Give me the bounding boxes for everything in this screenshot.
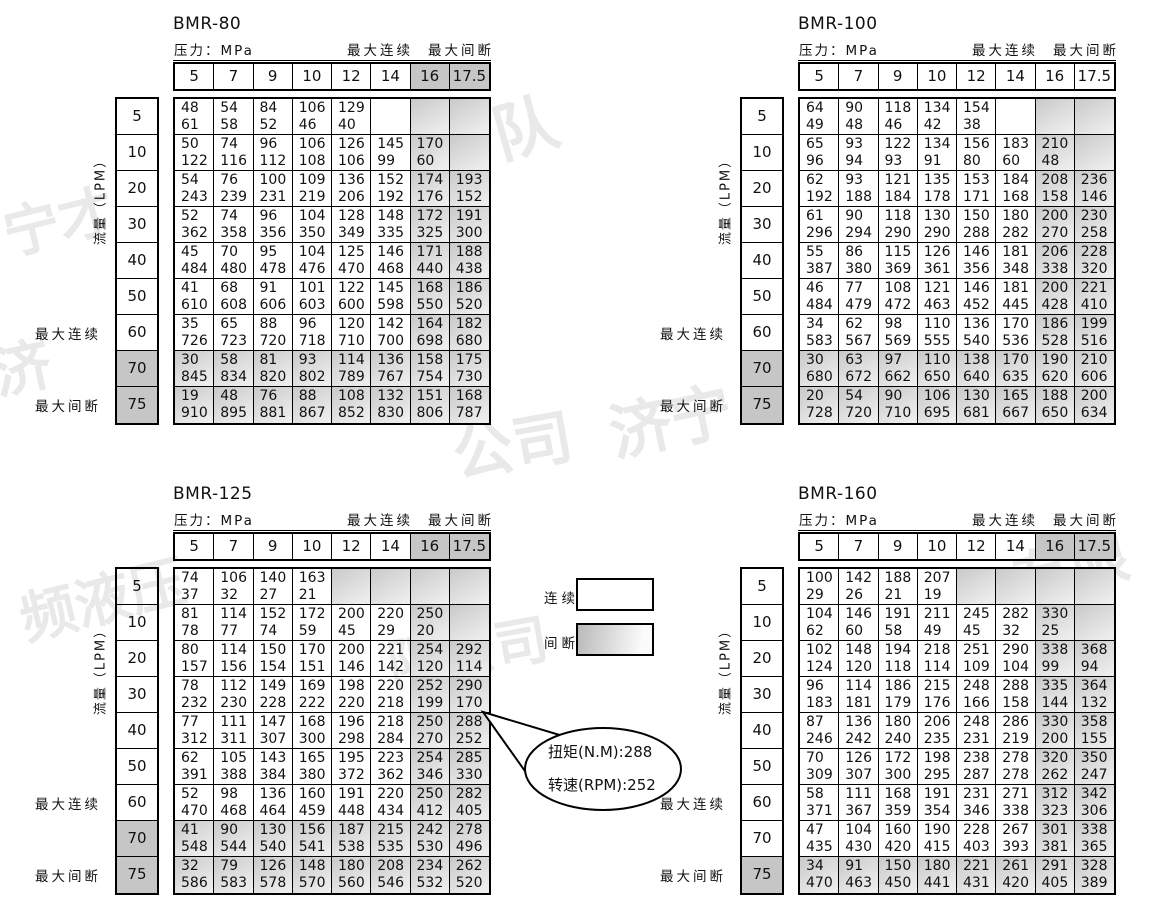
data-cell: 191354 bbox=[918, 785, 957, 821]
speed-value: 42 bbox=[924, 117, 956, 134]
torque-value: 191 bbox=[885, 606, 917, 623]
speed-value: 94 bbox=[1081, 659, 1114, 676]
speed-value: 288 bbox=[963, 225, 995, 242]
speed-value: 435 bbox=[806, 839, 838, 856]
torque-value: 328 bbox=[1081, 858, 1114, 875]
table-title: BMR-160 bbox=[798, 484, 878, 504]
torque-value: 115 bbox=[885, 244, 917, 261]
torque-value: 55 bbox=[806, 244, 838, 261]
speed-value: 910 bbox=[181, 405, 213, 422]
data-cell: 81820 bbox=[254, 351, 293, 387]
flow-label-cell: 20 bbox=[117, 171, 157, 207]
torque-value: 221 bbox=[963, 858, 995, 875]
speed-value: 700 bbox=[377, 333, 409, 350]
speed-value: 695 bbox=[924, 405, 956, 422]
speed-value: 464 bbox=[260, 803, 292, 820]
torque-value: 211 bbox=[924, 606, 956, 623]
torque-value: 180 bbox=[1002, 208, 1034, 225]
torque-value: 52 bbox=[181, 786, 213, 803]
torque-value: 278 bbox=[1002, 750, 1034, 767]
flow-labels-column: 51020304050607075 bbox=[740, 567, 784, 895]
data-cell: 20045 bbox=[332, 605, 371, 641]
data-cell: 96112 bbox=[254, 135, 293, 171]
speed-value: 445 bbox=[1002, 297, 1034, 314]
speed-value: 358 bbox=[220, 225, 252, 242]
speed-value: 535 bbox=[377, 839, 409, 856]
data-cell: 358155 bbox=[1075, 713, 1114, 749]
data-cell: 220434 bbox=[371, 785, 410, 821]
speed-value: 231 bbox=[260, 189, 292, 206]
pressure-header-row: 压力：MPa最大连续最大间断 bbox=[173, 509, 491, 531]
speed-value: 114 bbox=[924, 659, 956, 676]
data-cell: 93188 bbox=[839, 171, 878, 207]
speed-value: 480 bbox=[220, 261, 252, 278]
speed-value: 541 bbox=[299, 839, 331, 856]
torque-value: 180 bbox=[338, 858, 370, 875]
data-cell: 21048 bbox=[1036, 135, 1075, 171]
data-cell: 190415 bbox=[918, 821, 957, 857]
flow-label-cell: 70 bbox=[742, 351, 782, 387]
data-cell: 33025 bbox=[1036, 605, 1075, 641]
speed-value: 120 bbox=[417, 659, 449, 676]
data-cell: 186520 bbox=[450, 279, 489, 315]
data-cell: 168787 bbox=[450, 387, 489, 423]
speed-value: 228 bbox=[260, 695, 292, 712]
speed-value: 300 bbox=[885, 767, 917, 784]
speed-value: 61 bbox=[181, 117, 213, 134]
max-continuous-header-label: 最大连续 bbox=[347, 509, 413, 529]
data-cell: 165667 bbox=[996, 387, 1035, 423]
data-cell: 9394 bbox=[839, 135, 878, 171]
data-cell: 330200 bbox=[1036, 713, 1075, 749]
data-cell: 52470 bbox=[175, 785, 214, 821]
table-bmr-80: BMR-80压力：MPa最大连续最大间断5791012141617.551020… bbox=[35, 14, 493, 444]
data-cell: 54720 bbox=[839, 387, 878, 423]
torque-value: 290 bbox=[456, 678, 489, 695]
speed-value: 200 bbox=[1042, 731, 1074, 748]
torque-value: 350 bbox=[1081, 750, 1114, 767]
speed-value: 356 bbox=[260, 225, 292, 242]
speed-value: 27 bbox=[260, 587, 292, 604]
speed-value: 270 bbox=[1042, 225, 1074, 242]
speed-value: 634 bbox=[1081, 405, 1114, 422]
speed-value: 176 bbox=[417, 189, 449, 206]
torque-value: 50 bbox=[181, 136, 213, 153]
torque-value: 95 bbox=[260, 244, 292, 261]
torque-value: 267 bbox=[1002, 822, 1034, 839]
pressure-header-cell: 9 bbox=[254, 64, 293, 89]
speed-value: 349 bbox=[338, 225, 370, 242]
speed-value: 258 bbox=[1081, 225, 1114, 242]
torque-value: 194 bbox=[885, 642, 917, 659]
torque-value: 135 bbox=[924, 172, 956, 189]
speed-value: 496 bbox=[456, 839, 489, 856]
torque-value: 184 bbox=[1002, 172, 1034, 189]
flow-label-cell: 40 bbox=[117, 713, 157, 749]
torque-value: 128 bbox=[338, 208, 370, 225]
torque-value: 121 bbox=[924, 280, 956, 297]
data-cell: 12940 bbox=[332, 99, 371, 135]
speed-value: 420 bbox=[1002, 875, 1034, 892]
torque-value: 34 bbox=[806, 858, 838, 875]
flow-label-cell: 40 bbox=[117, 243, 157, 279]
data-cell: 248166 bbox=[957, 677, 996, 713]
data-cell: 33899 bbox=[1036, 641, 1075, 677]
data-cell bbox=[332, 569, 371, 605]
speed-value: 536 bbox=[1002, 333, 1034, 350]
flow-label-cell: 5 bbox=[742, 99, 782, 135]
data-cell: 200146 bbox=[332, 641, 371, 677]
torque-value: 149 bbox=[260, 678, 292, 695]
speed-value: 106 bbox=[338, 153, 370, 170]
pressure-header-row: 压力：MPa最大连续最大间断 bbox=[798, 509, 1116, 531]
data-cell: 194118 bbox=[879, 641, 918, 677]
pressure-header-cell: 5 bbox=[175, 64, 214, 89]
torque-value: 19 bbox=[181, 388, 213, 405]
torque-value: 188 bbox=[885, 570, 917, 587]
speed-value: 96 bbox=[806, 153, 838, 170]
torque-value: 174 bbox=[417, 172, 449, 189]
data-cell: 169222 bbox=[293, 677, 332, 713]
speed-value: 555 bbox=[924, 333, 956, 350]
data-cell: 142700 bbox=[371, 315, 410, 351]
data-cell: 112230 bbox=[214, 677, 253, 713]
torque-value: 125 bbox=[338, 244, 370, 261]
speed-value: 728 bbox=[806, 405, 838, 422]
flow-labels-column: 51020304050607075 bbox=[740, 97, 784, 425]
torque-value: 198 bbox=[924, 750, 956, 767]
torque-value: 122 bbox=[885, 136, 917, 153]
torque-value: 47 bbox=[806, 822, 838, 839]
data-cell: 231346 bbox=[957, 785, 996, 821]
data-cell: 10462 bbox=[800, 605, 839, 641]
torque-value: 58 bbox=[220, 352, 252, 369]
speed-value: 338 bbox=[1042, 261, 1074, 278]
flow-label-cell: 10 bbox=[742, 135, 782, 171]
speed-value: 867 bbox=[299, 405, 331, 422]
torque-value: 320 bbox=[1042, 750, 1074, 767]
data-cell: 41548 bbox=[175, 821, 214, 857]
speed-value: 608 bbox=[220, 297, 252, 314]
torque-value: 126 bbox=[338, 136, 370, 153]
data-cell: 186528 bbox=[1036, 315, 1075, 351]
data-cell: 171440 bbox=[411, 243, 450, 279]
torque-value: 186 bbox=[456, 280, 489, 297]
data-cell bbox=[450, 605, 489, 641]
speed-value: 80 bbox=[963, 153, 995, 170]
data-cell: 108472 bbox=[879, 279, 918, 315]
torque-value: 145 bbox=[377, 280, 409, 297]
data-cell: 160420 bbox=[879, 821, 918, 857]
torque-value: 100 bbox=[260, 172, 292, 189]
data-cell: 292114 bbox=[450, 641, 489, 677]
torque-value: 109 bbox=[299, 172, 331, 189]
speed-value: 806 bbox=[417, 405, 449, 422]
speed-value: 60 bbox=[1002, 153, 1034, 170]
data-cell: 20728 bbox=[800, 387, 839, 423]
data-cell: 9048 bbox=[839, 99, 878, 135]
speed-value: 112 bbox=[260, 153, 292, 170]
torque-value: 91 bbox=[260, 280, 292, 297]
torque-value: 88 bbox=[299, 388, 331, 405]
speed-value: 726 bbox=[181, 333, 213, 350]
flow-axis-label: 流量（LPM） bbox=[715, 623, 734, 715]
torque-value: 190 bbox=[1042, 352, 1074, 369]
torque-value: 63 bbox=[845, 352, 877, 369]
speed-value: 412 bbox=[417, 803, 449, 820]
data-cell: 34583 bbox=[800, 315, 839, 351]
torque-value: 152 bbox=[377, 172, 409, 189]
torque-value: 32 bbox=[181, 858, 213, 875]
data-cell: 136767 bbox=[371, 351, 410, 387]
speed-value: 635 bbox=[1002, 369, 1034, 386]
speed-value: 586 bbox=[181, 875, 213, 892]
data-cell: 62391 bbox=[175, 749, 214, 785]
callout-torque: 扭矩(N.M):288 bbox=[548, 741, 656, 762]
speed-value: 116 bbox=[220, 153, 252, 170]
data-cell: 148335 bbox=[371, 207, 410, 243]
data-cell: 48895 bbox=[214, 387, 253, 423]
pressure-header-cell: 17.5 bbox=[450, 534, 489, 559]
speed-value: 60 bbox=[845, 623, 877, 640]
speed-value: 312 bbox=[181, 731, 213, 748]
speed-value: 120 bbox=[845, 659, 877, 676]
data-cell: 135178 bbox=[918, 171, 957, 207]
torque-value: 70 bbox=[806, 750, 838, 767]
data-cell: 97662 bbox=[879, 351, 918, 387]
flow-label-cell: 75 bbox=[742, 857, 782, 893]
flow-label-cell: 75 bbox=[117, 387, 157, 423]
torque-value: 146 bbox=[963, 280, 995, 297]
torque-value: 97 bbox=[885, 352, 917, 369]
flow-label-cell: 20 bbox=[742, 641, 782, 677]
speed-value: 290 bbox=[924, 225, 956, 242]
data-cell: 90544 bbox=[214, 821, 253, 857]
data-cell: 156541 bbox=[293, 821, 332, 857]
data-cell: 74116 bbox=[214, 135, 253, 171]
legend-intermittent-swatch bbox=[576, 623, 654, 656]
speed-value: 290 bbox=[885, 225, 917, 242]
data-cell: 76881 bbox=[254, 387, 293, 423]
torque-value: 77 bbox=[845, 280, 877, 297]
legend-continuous-swatch bbox=[576, 578, 654, 611]
torque-value: 136 bbox=[260, 786, 292, 803]
data-cell: 91463 bbox=[839, 857, 878, 893]
flow-label-cell: 10 bbox=[117, 135, 157, 171]
speed-value: 298 bbox=[338, 731, 370, 748]
torque-value: 80 bbox=[181, 642, 213, 659]
pressure-header-cell: 16 bbox=[411, 534, 450, 559]
speed-value: 282 bbox=[1002, 225, 1034, 242]
torque-value: 168 bbox=[456, 388, 489, 405]
data-cell bbox=[411, 99, 450, 135]
data-cell: 148120 bbox=[839, 641, 878, 677]
data-cell: 22029 bbox=[371, 605, 410, 641]
data-cell: 221431 bbox=[957, 857, 996, 893]
pressure-header-cell: 7 bbox=[214, 64, 253, 89]
torque-value: 106 bbox=[924, 388, 956, 405]
torque-value: 118 bbox=[885, 100, 917, 117]
torque-value: 121 bbox=[885, 172, 917, 189]
max-intermittent-side-label: 最大间断 bbox=[660, 395, 726, 415]
data-cell: 76239 bbox=[214, 171, 253, 207]
torque-value: 191 bbox=[338, 786, 370, 803]
speed-value: 567 bbox=[845, 333, 877, 350]
speed-value: 560 bbox=[338, 875, 370, 892]
torque-value: 170 bbox=[1002, 316, 1034, 333]
flow-label-cell: 5 bbox=[117, 569, 157, 605]
speed-value: 144 bbox=[1042, 695, 1074, 712]
pressure-header-cell: 12 bbox=[957, 64, 996, 89]
torque-value: 312 bbox=[1042, 786, 1074, 803]
torque-value: 261 bbox=[1002, 858, 1034, 875]
torque-value: 140 bbox=[260, 570, 292, 587]
speed-value: 230 bbox=[220, 695, 252, 712]
torque-value: 147 bbox=[260, 714, 292, 731]
flow-label-cell: 30 bbox=[117, 207, 157, 243]
data-cell bbox=[450, 135, 489, 171]
data-cell: 70480 bbox=[214, 243, 253, 279]
torque-value: 126 bbox=[260, 858, 292, 875]
data-cell: 110555 bbox=[918, 315, 957, 351]
torque-value: 215 bbox=[924, 678, 956, 695]
torque-value: 150 bbox=[885, 858, 917, 875]
speed-value: 45 bbox=[338, 623, 370, 640]
speed-value: 206 bbox=[338, 189, 370, 206]
torque-value: 196 bbox=[338, 714, 370, 731]
torque-value: 180 bbox=[885, 714, 917, 731]
data-cell: 288158 bbox=[996, 677, 1035, 713]
torque-value: 191 bbox=[456, 208, 489, 225]
speed-value: 470 bbox=[806, 875, 838, 892]
torque-value: 84 bbox=[260, 100, 292, 117]
speed-value: 59 bbox=[299, 623, 331, 640]
speed-value: 787 bbox=[456, 405, 489, 422]
torque-value: 254 bbox=[417, 750, 449, 767]
speed-value: 335 bbox=[377, 225, 409, 242]
flow-label-cell: 30 bbox=[742, 207, 782, 243]
data-cell: 234532 bbox=[411, 857, 450, 893]
data-cell: 180560 bbox=[332, 857, 371, 893]
pressure-header-cell: 16 bbox=[1036, 534, 1075, 559]
torque-value: 87 bbox=[806, 714, 838, 731]
data-cell: 335144 bbox=[1036, 677, 1075, 713]
speed-value: 29 bbox=[377, 623, 409, 640]
torque-value: 168 bbox=[885, 786, 917, 803]
pressure-header-cell: 10 bbox=[918, 534, 957, 559]
data-cell: 45484 bbox=[175, 243, 214, 279]
torque-value: 170 bbox=[299, 642, 331, 659]
legend-continuous-label: 连续 bbox=[544, 587, 579, 607]
speed-value: 710 bbox=[885, 405, 917, 422]
data-cell: 98468 bbox=[214, 785, 253, 821]
data-cell: 88720 bbox=[254, 315, 293, 351]
torque-value: 110 bbox=[924, 352, 956, 369]
speed-value: 603 bbox=[299, 297, 331, 314]
torque-value: 142 bbox=[845, 570, 877, 587]
torque-value: 248 bbox=[963, 678, 995, 695]
data-cell: 10029 bbox=[800, 569, 839, 605]
speed-value: 320 bbox=[1081, 261, 1114, 278]
speed-value: 242 bbox=[845, 731, 877, 748]
speed-value: 295 bbox=[924, 767, 956, 784]
data-cell: 18360 bbox=[996, 135, 1035, 171]
data-cell: 90710 bbox=[879, 387, 918, 423]
speed-value: 470 bbox=[338, 261, 370, 278]
data-cell: 77312 bbox=[175, 713, 214, 749]
speed-value: 78 bbox=[181, 623, 213, 640]
speed-value: 157 bbox=[181, 659, 213, 676]
torque-value: 171 bbox=[417, 244, 449, 261]
speed-value: 468 bbox=[220, 803, 252, 820]
torque-value: 108 bbox=[338, 388, 370, 405]
torque-value: 151 bbox=[417, 388, 449, 405]
data-cell: 8452 bbox=[254, 99, 293, 135]
torque-value: 130 bbox=[924, 208, 956, 225]
speed-value: 60 bbox=[417, 153, 449, 170]
data-cell: 95478 bbox=[254, 243, 293, 279]
speed-value: 132 bbox=[1081, 695, 1114, 712]
watermark: 队 bbox=[481, 71, 568, 177]
flow-label-cell: 60 bbox=[117, 785, 157, 821]
pressure-header-row: 压力：MPa最大连续最大间断 bbox=[173, 39, 491, 61]
torque-value: 335 bbox=[1042, 678, 1074, 695]
torque-value: 198 bbox=[338, 678, 370, 695]
data-cell: 30680 bbox=[800, 351, 839, 387]
data-cell: 122600 bbox=[332, 279, 371, 315]
data-cell: 35726 bbox=[175, 315, 214, 351]
speed-value: 516 bbox=[1081, 333, 1114, 350]
max-intermittent-header-label: 最大间断 bbox=[428, 509, 494, 529]
speed-value: 38 bbox=[963, 117, 995, 134]
torque-value: 160 bbox=[885, 822, 917, 839]
callout-text: 扭矩(N.M):288 转速(RPM):252 bbox=[548, 741, 656, 807]
speed-value: 246 bbox=[806, 731, 838, 748]
data-cell: 93802 bbox=[293, 351, 332, 387]
data-cell: 20719 bbox=[918, 569, 957, 605]
data-cell: 148570 bbox=[293, 857, 332, 893]
speed-value: 463 bbox=[845, 875, 877, 892]
data-cell: 191300 bbox=[450, 207, 489, 243]
torque-value: 126 bbox=[924, 244, 956, 261]
torque-value: 200 bbox=[338, 642, 370, 659]
speed-value: 672 bbox=[845, 369, 877, 386]
torque-value: 64 bbox=[806, 100, 838, 117]
flow-labels-column: 51020304050607075 bbox=[115, 97, 159, 425]
speed-value: 77 bbox=[220, 623, 252, 640]
speed-value: 362 bbox=[181, 225, 213, 242]
torque-value: 96 bbox=[806, 678, 838, 695]
torque-value: 288 bbox=[1002, 678, 1034, 695]
speed-value: 220 bbox=[338, 695, 370, 712]
max-continuous-side-label: 最大连续 bbox=[660, 323, 726, 343]
max-intermittent-header-label: 最大间断 bbox=[1053, 509, 1119, 529]
speed-value: 49 bbox=[924, 623, 956, 640]
pressure-header-cell: 17.5 bbox=[450, 64, 489, 89]
torque-value: 52 bbox=[181, 208, 213, 225]
data-cell: 191448 bbox=[332, 785, 371, 821]
data-cell: 13491 bbox=[918, 135, 957, 171]
data-cell: 78232 bbox=[175, 677, 214, 713]
data-cell: 86380 bbox=[839, 243, 878, 279]
data-cell: 61296 bbox=[800, 207, 839, 243]
torque-value: 106 bbox=[220, 570, 252, 587]
torque-value: 193 bbox=[456, 172, 489, 189]
max-continuous-header-label: 最大连续 bbox=[972, 509, 1038, 529]
torque-value: 112 bbox=[220, 678, 252, 695]
torque-value: 150 bbox=[963, 208, 995, 225]
data-cell: 96356 bbox=[254, 207, 293, 243]
